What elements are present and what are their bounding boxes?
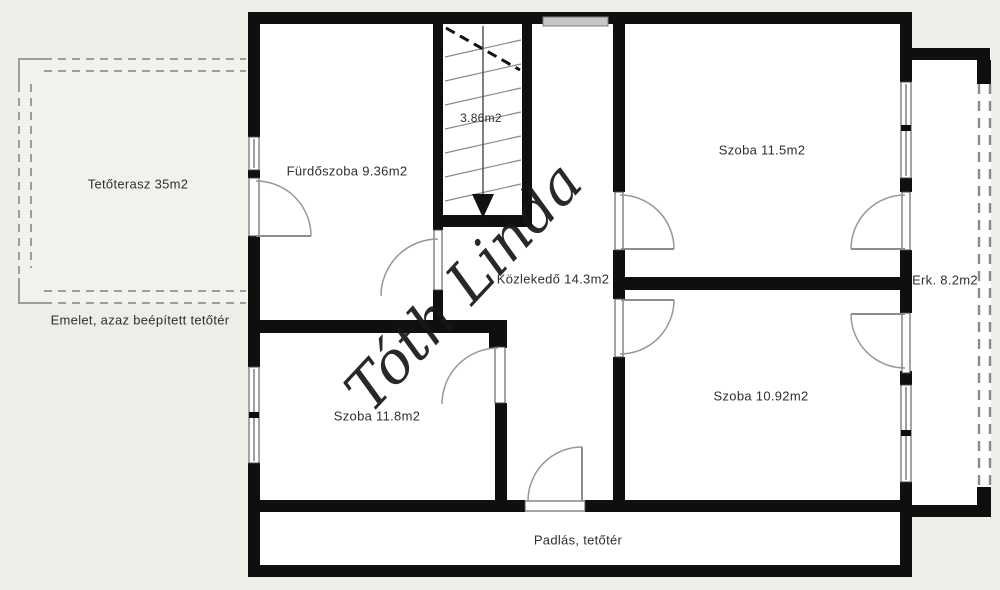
label-room-top-right: Szoba 11.5m2: [719, 143, 805, 158]
label-bathroom: Fürdőszoba 9.36m2: [287, 164, 408, 179]
floor-plan: Tóth Linda Tetőterasz 35m2 Emelet, azaz …: [0, 0, 1000, 590]
window-right-top: [901, 82, 911, 178]
floor-plan-drawing: Tóth Linda: [0, 0, 1000, 590]
label-balcony: Erk. 8.2m2: [912, 273, 978, 288]
label-floor-note: Emelet, azaz beépített tetőtér: [51, 313, 230, 328]
door-room-bottom-right-balcony: [902, 313, 910, 373]
window-left-room: [249, 367, 259, 463]
door-hallway-room-bottom-right: [615, 299, 623, 357]
door-hallway-room-bottom-left: [495, 347, 505, 403]
door-room-top-right-balcony: [902, 192, 910, 250]
label-stairwell: 3.86m2: [460, 111, 502, 125]
door-hallway-attic: [525, 501, 585, 511]
window-top-hallway: [543, 17, 608, 26]
label-room-bottom-right: Szoba 10.92m2: [714, 389, 809, 404]
door-hallway-room-top-right: [615, 192, 623, 250]
label-terrace: Tetőterasz 35m2: [88, 177, 189, 192]
label-room-bottom-left: Szoba 11.8m2: [334, 409, 420, 424]
window-left-bathroom: [249, 137, 259, 170]
door-terrace-bathroom: [249, 178, 259, 236]
window-right-bottom: [901, 385, 911, 482]
label-attic: Padlás, tetőtér: [534, 533, 622, 548]
label-hallway: Közlekedő 14.3m2: [497, 272, 609, 287]
